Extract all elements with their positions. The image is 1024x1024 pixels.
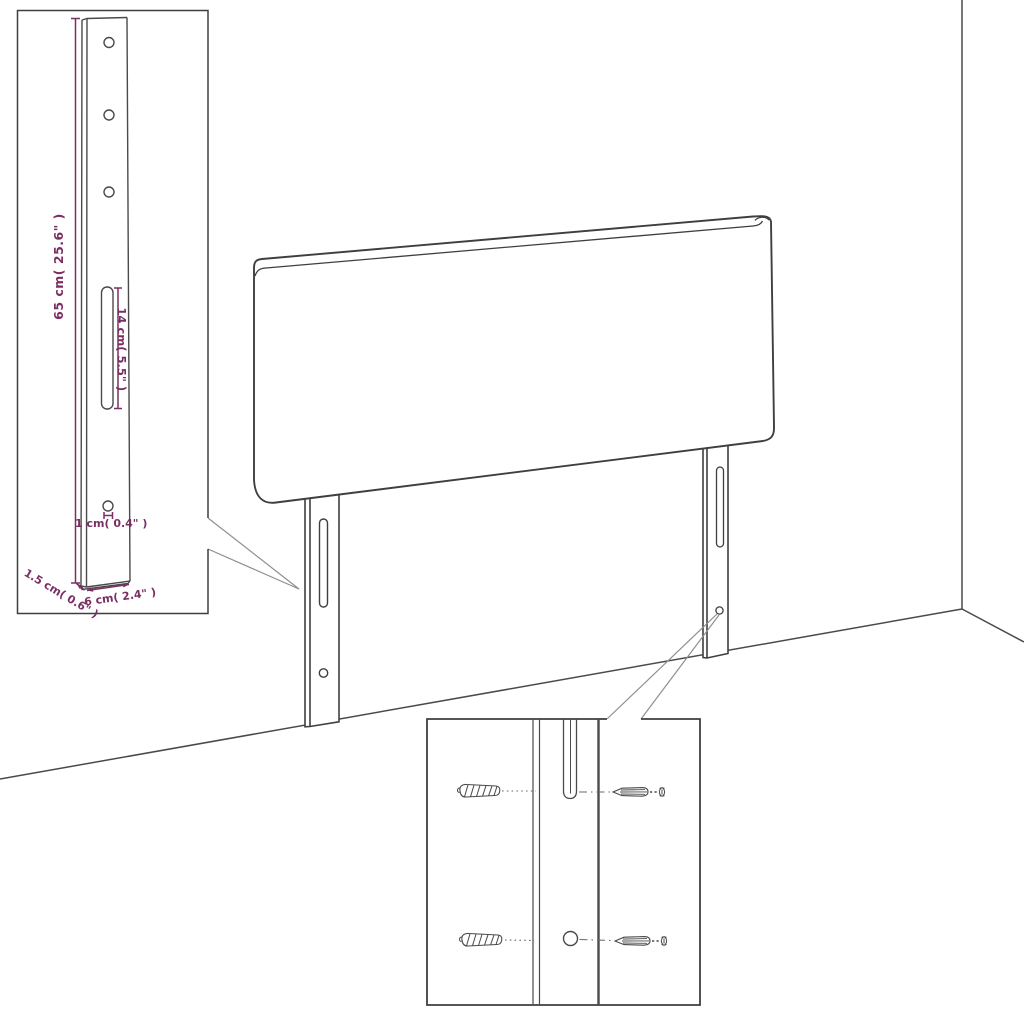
line-art-canvas xyxy=(0,0,1024,1024)
headboard-panel xyxy=(254,216,774,503)
callout-lines-leg-inset xyxy=(208,518,299,589)
headboard-left-leg xyxy=(305,487,339,727)
floor-line-right xyxy=(962,609,1024,642)
wall-plug-bottom-icon xyxy=(459,933,501,946)
wall-plug-top-icon xyxy=(457,784,499,797)
dimension-label-hole-size: 1 cm( 0.4" ) xyxy=(75,518,141,530)
headboard-dimension-diagram: 65 cm( 25.6" ) 14 cm( 5.5" ) 1 cm( 0.4" … xyxy=(0,0,1024,1024)
dimension-label-slot-length: 14 cm( 5.5" ) xyxy=(115,307,128,391)
dimension-label-leg-height: 65 cm( 25.6" ) xyxy=(52,220,66,320)
headboard-right-leg xyxy=(703,438,728,658)
inset-mounting-detail xyxy=(427,719,700,1005)
